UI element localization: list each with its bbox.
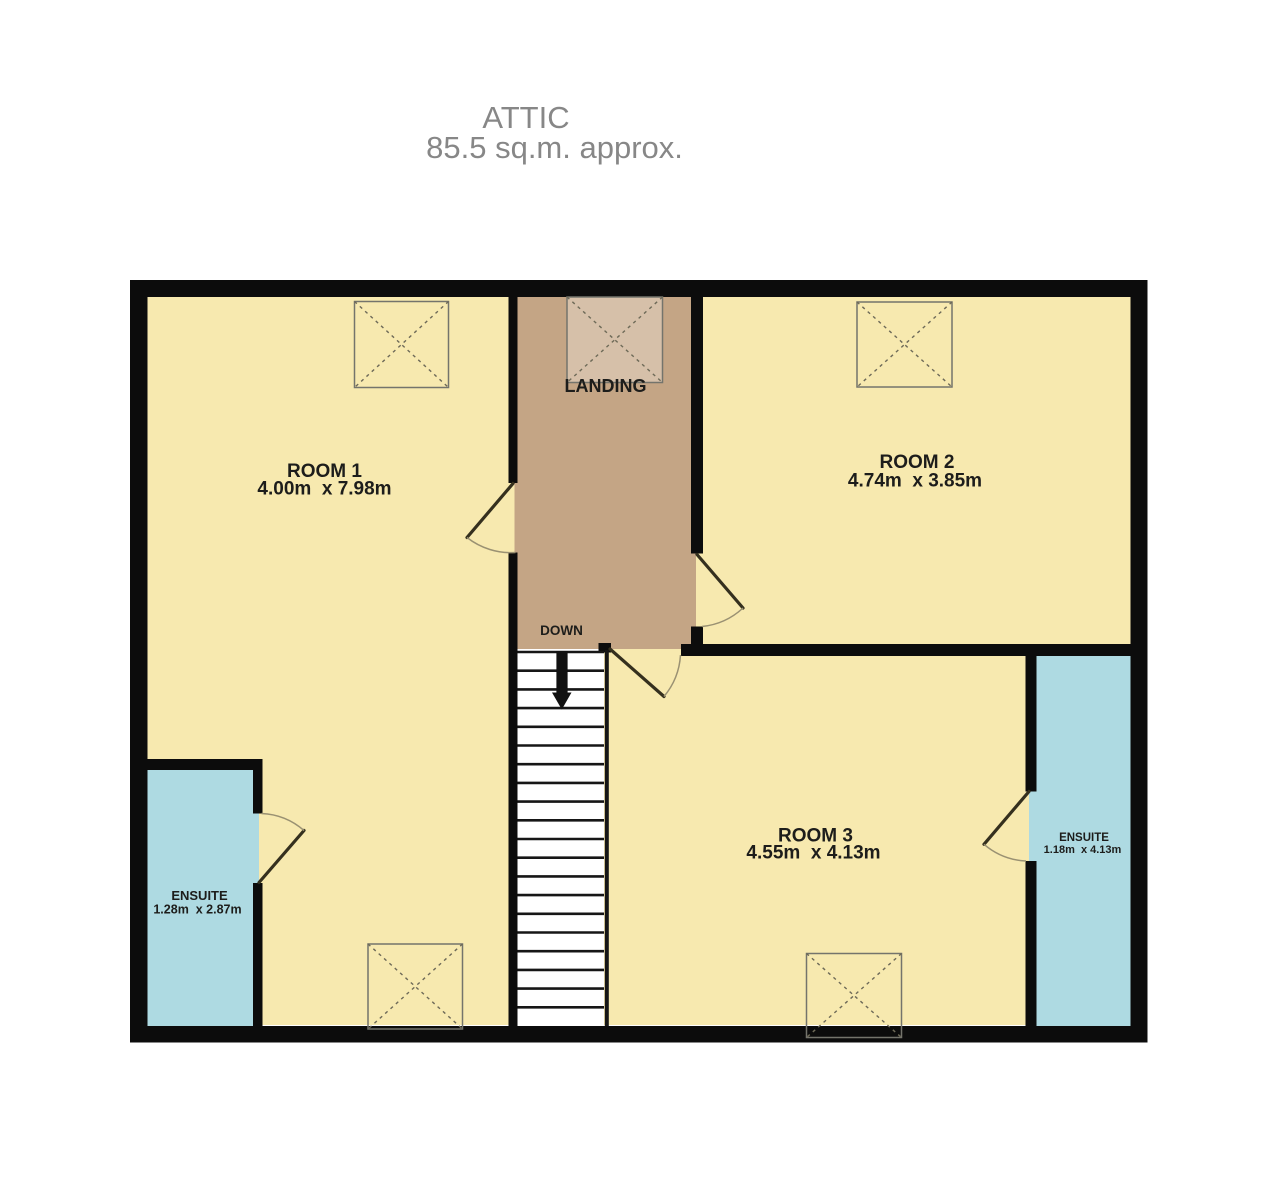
svg-text:4.55m x 4.13m: 4.55m x 4.13m — [746, 843, 880, 864]
svg-text:LANDING: LANDING — [565, 376, 647, 396]
svg-text:1.18m x 4.13m: 1.18m x 4.13m — [1044, 844, 1122, 856]
svg-text:85.5 sq.m. approx.: 85.5 sq.m. approx. — [426, 130, 683, 165]
svg-text:DOWN: DOWN — [540, 623, 583, 638]
svg-text:4.00m x 7.98m: 4.00m x 7.98m — [257, 479, 391, 500]
svg-text:4.74m x 3.85m: 4.74m x 3.85m — [848, 471, 982, 492]
svg-text:ENSUITE: ENSUITE — [171, 888, 228, 903]
svg-text:ENSUITE: ENSUITE — [1059, 832, 1109, 844]
svg-text:1.28m x 2.87m: 1.28m x 2.87m — [153, 903, 241, 917]
